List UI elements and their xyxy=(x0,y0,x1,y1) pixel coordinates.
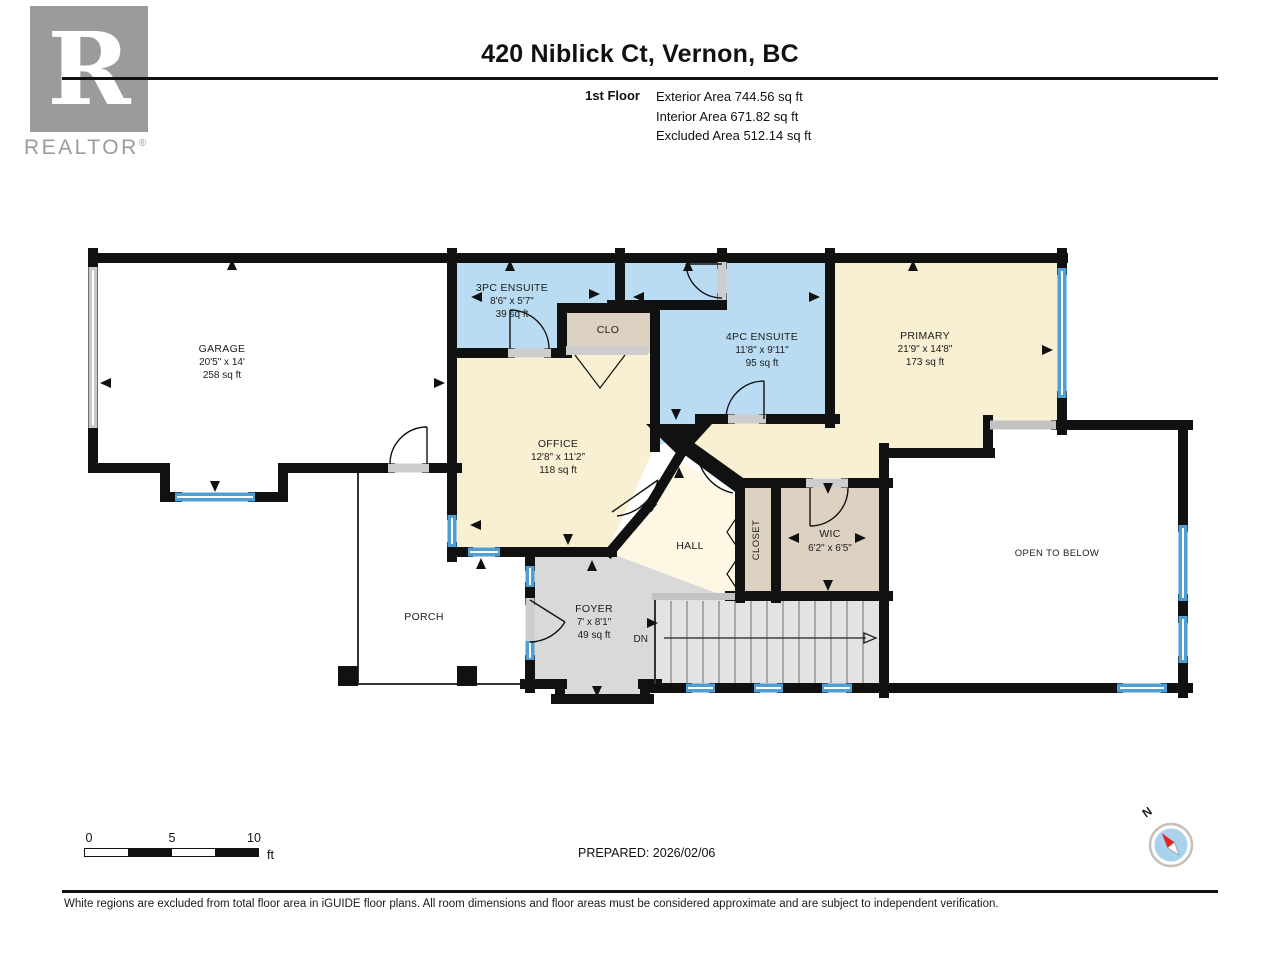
disclaimer-text: White regions are excluded from total fl… xyxy=(64,898,999,910)
clo-label: CLO xyxy=(597,324,620,336)
primary-area: 173 sq ft xyxy=(906,357,945,368)
stairs-floor xyxy=(655,600,884,684)
scale-tick-0: 0 xyxy=(83,831,95,845)
scale-tick-10: 10 xyxy=(243,831,265,845)
ensuite4-dims: 11'8" x 9'11" xyxy=(735,345,789,356)
compass-icon: N xyxy=(1128,796,1214,882)
ensuite3-area: 39 sq ft xyxy=(496,309,529,320)
floor-plan-canvas: GARAGE 20'5" x 14' 258 sq ft 3PC ENSUITE… xyxy=(0,0,1280,960)
floor-plan-page: R REALTOR® 420 Niblick Ct, Vernon, BC 1s… xyxy=(0,0,1280,960)
foyer-label: FOYER xyxy=(575,603,613,615)
ensuite3-label: 3PC ENSUITE xyxy=(476,282,548,294)
office-area: 118 sq ft xyxy=(539,465,577,476)
wic-dims: 6'2" x 6'5" xyxy=(808,543,852,554)
open-to-below-label: OPEN TO BELOW xyxy=(1015,548,1100,559)
garage-dims: 20'5" x 14' xyxy=(199,357,245,368)
porch-label: PORCH xyxy=(404,611,443,623)
scale-bar: 0 5 10 ft xyxy=(84,831,284,857)
stairs-dn-label: DN xyxy=(634,634,648,645)
primary-dims: 21'9" x 14'8" xyxy=(898,344,953,355)
scale-bar-segments xyxy=(84,848,259,857)
ensuite3-dims: 8'6" x 5'7" xyxy=(490,296,534,307)
wic-label: WIC xyxy=(819,528,840,540)
scale-bar-ticks: 0 5 10 xyxy=(84,831,284,846)
scale-tick-5: 5 xyxy=(165,831,179,845)
compass-north-label: N xyxy=(1140,804,1155,820)
scale-unit: ft xyxy=(267,848,274,862)
room-floors xyxy=(98,258,1183,699)
office-dims: 12'8" x 11'2" xyxy=(531,452,586,463)
foyer-area: 49 sq ft xyxy=(578,630,611,641)
prepared-date: PREPARED: 2026/02/06 xyxy=(578,846,715,860)
ensuite4-area: 95 sq ft xyxy=(746,358,779,369)
office-label: OFFICE xyxy=(538,438,578,450)
garage-label: GARAGE xyxy=(199,343,246,355)
primary-label: PRIMARY xyxy=(900,330,950,342)
garage-area: 258 sq ft xyxy=(203,370,242,381)
garage-floor xyxy=(98,258,452,497)
ensuite4-label: 4PC ENSUITE xyxy=(726,331,798,343)
footer-divider xyxy=(62,890,1218,893)
closet-label: CLOSET xyxy=(751,520,762,560)
foyer-dims: 7' x 8'1" xyxy=(577,617,612,628)
hall-label: HALL xyxy=(676,540,703,552)
